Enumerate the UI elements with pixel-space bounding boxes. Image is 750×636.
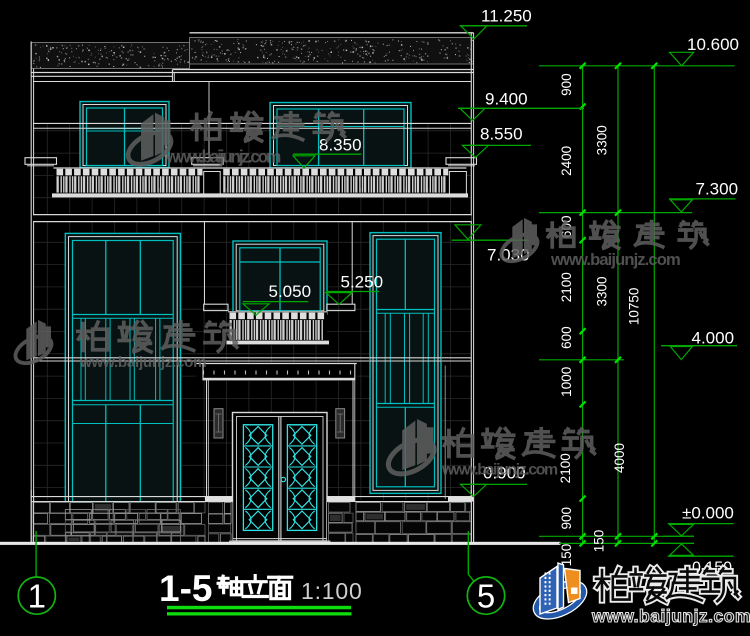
svg-text:150: 150 bbox=[592, 530, 607, 553]
svg-text:www.baijunjz.com: www.baijunjz.com bbox=[591, 606, 750, 626]
svg-text:5.050: 5.050 bbox=[269, 282, 312, 301]
svg-text:8.350: 8.350 bbox=[319, 136, 362, 155]
svg-text:10750: 10750 bbox=[627, 288, 642, 326]
svg-text:5.250: 5.250 bbox=[341, 273, 384, 292]
svg-text:www.baijunjz.com: www.baijunjz.com bbox=[165, 147, 281, 167]
svg-text:4000: 4000 bbox=[612, 443, 627, 473]
svg-text:3300: 3300 bbox=[595, 125, 610, 155]
svg-text:3300: 3300 bbox=[595, 276, 610, 306]
svg-text:www.baijunjz.com: www.baijunjz.com bbox=[441, 462, 558, 479]
svg-text:10.600: 10.600 bbox=[687, 35, 739, 54]
svg-text:2400: 2400 bbox=[559, 146, 574, 176]
svg-text:8.550: 8.550 bbox=[480, 125, 523, 144]
svg-text:www.baijunjz.com: www.baijunjz.com bbox=[550, 250, 680, 269]
svg-text:9.400: 9.400 bbox=[485, 90, 528, 109]
svg-text:1:100: 1:100 bbox=[301, 578, 363, 604]
svg-text:600: 600 bbox=[559, 326, 574, 349]
svg-text:1: 1 bbox=[28, 578, 46, 615]
svg-text:11.250: 11.250 bbox=[481, 7, 532, 26]
svg-text:7.300: 7.300 bbox=[696, 180, 739, 199]
svg-text:1000: 1000 bbox=[559, 367, 574, 397]
svg-text:2100: 2100 bbox=[559, 272, 574, 302]
svg-text:150: 150 bbox=[559, 544, 574, 567]
svg-text:2100: 2100 bbox=[558, 453, 573, 483]
svg-text:4.000: 4.000 bbox=[692, 329, 735, 348]
svg-text:900: 900 bbox=[559, 73, 574, 96]
svg-text:www.baijunjz.com: www.baijunjz.com bbox=[79, 354, 206, 371]
svg-text:±0.000: ±0.000 bbox=[682, 504, 734, 523]
svg-text:5: 5 bbox=[477, 578, 495, 615]
svg-text:1-5: 1-5 bbox=[159, 568, 212, 609]
svg-text:900: 900 bbox=[559, 507, 574, 530]
